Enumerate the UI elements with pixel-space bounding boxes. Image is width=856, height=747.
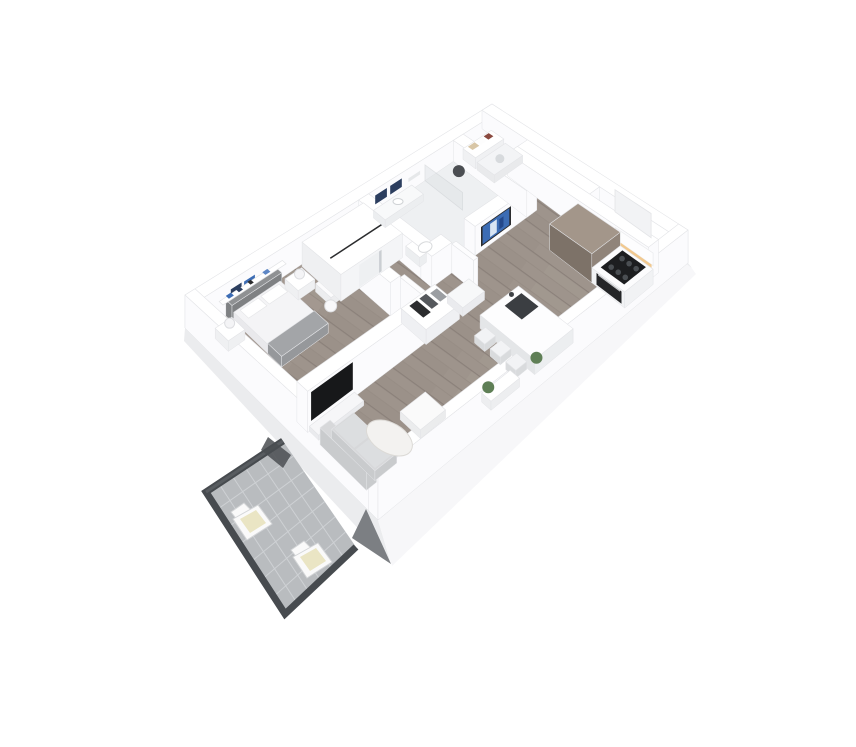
burner-3 [615,269,621,275]
bedroom-side-table [325,300,337,312]
shelf-plant [482,381,494,393]
burner-1 [608,264,614,270]
burner-2 [619,256,625,262]
burner-4 [626,261,632,267]
burner-5 [622,275,628,281]
lamp-right [295,269,305,279]
lamp-left [225,318,235,328]
wardrobe-door-edge [379,250,382,273]
apartment-3d-floorplan-page [0,0,856,747]
washer-door [495,154,504,163]
apartment-3d-floorplan-render [0,0,856,747]
vanity-basin [393,199,403,205]
island-plant [530,352,542,364]
burner-6 [633,266,639,272]
shower-head [453,165,465,177]
island-faucet [509,292,514,297]
